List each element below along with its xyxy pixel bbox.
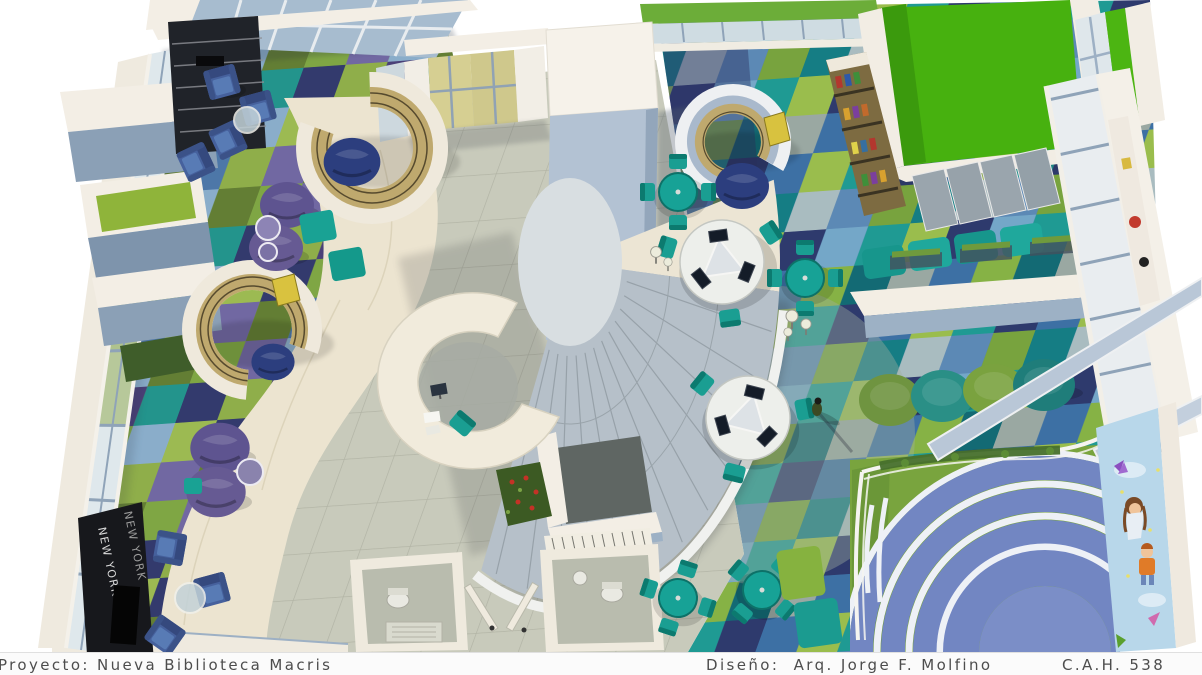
new-york-wall: NEW YORK NEW YORK [78, 502, 154, 652]
beanbag-navy [251, 344, 294, 381]
teal-ottoman [328, 246, 367, 281]
presentation-board: NEW YORK NEW YORK [0, 0, 1202, 675]
round-side-table [259, 243, 277, 261]
teal-ottoman [184, 478, 202, 494]
round-side-table [237, 459, 263, 485]
round-side-table [256, 216, 280, 240]
clerestory-glazing [640, 0, 883, 52]
restroom-right [540, 544, 664, 652]
glass-side-table [175, 583, 205, 613]
library-aerial-render: NEW YORK NEW YORK [0, 0, 1202, 652]
teal-floor-pad [793, 597, 843, 649]
sink [573, 571, 587, 585]
restroom-left [350, 552, 468, 652]
beanbag-navy [324, 138, 381, 186]
caption-registry: C.A.H. 538 [1062, 656, 1165, 674]
glass-side-table [234, 107, 260, 133]
caption-bar: Proyecto: Nueva Biblioteca Macris Diseño… [0, 652, 1202, 675]
caption-project: Proyecto: Nueva Biblioteca Macris [0, 656, 332, 674]
green-floor-pad [776, 545, 827, 601]
beanbag-navy [715, 163, 769, 209]
teal-ottoman [299, 209, 338, 244]
caption-designer: Diseño: Arq. Jorge F. Molfino [706, 656, 992, 674]
